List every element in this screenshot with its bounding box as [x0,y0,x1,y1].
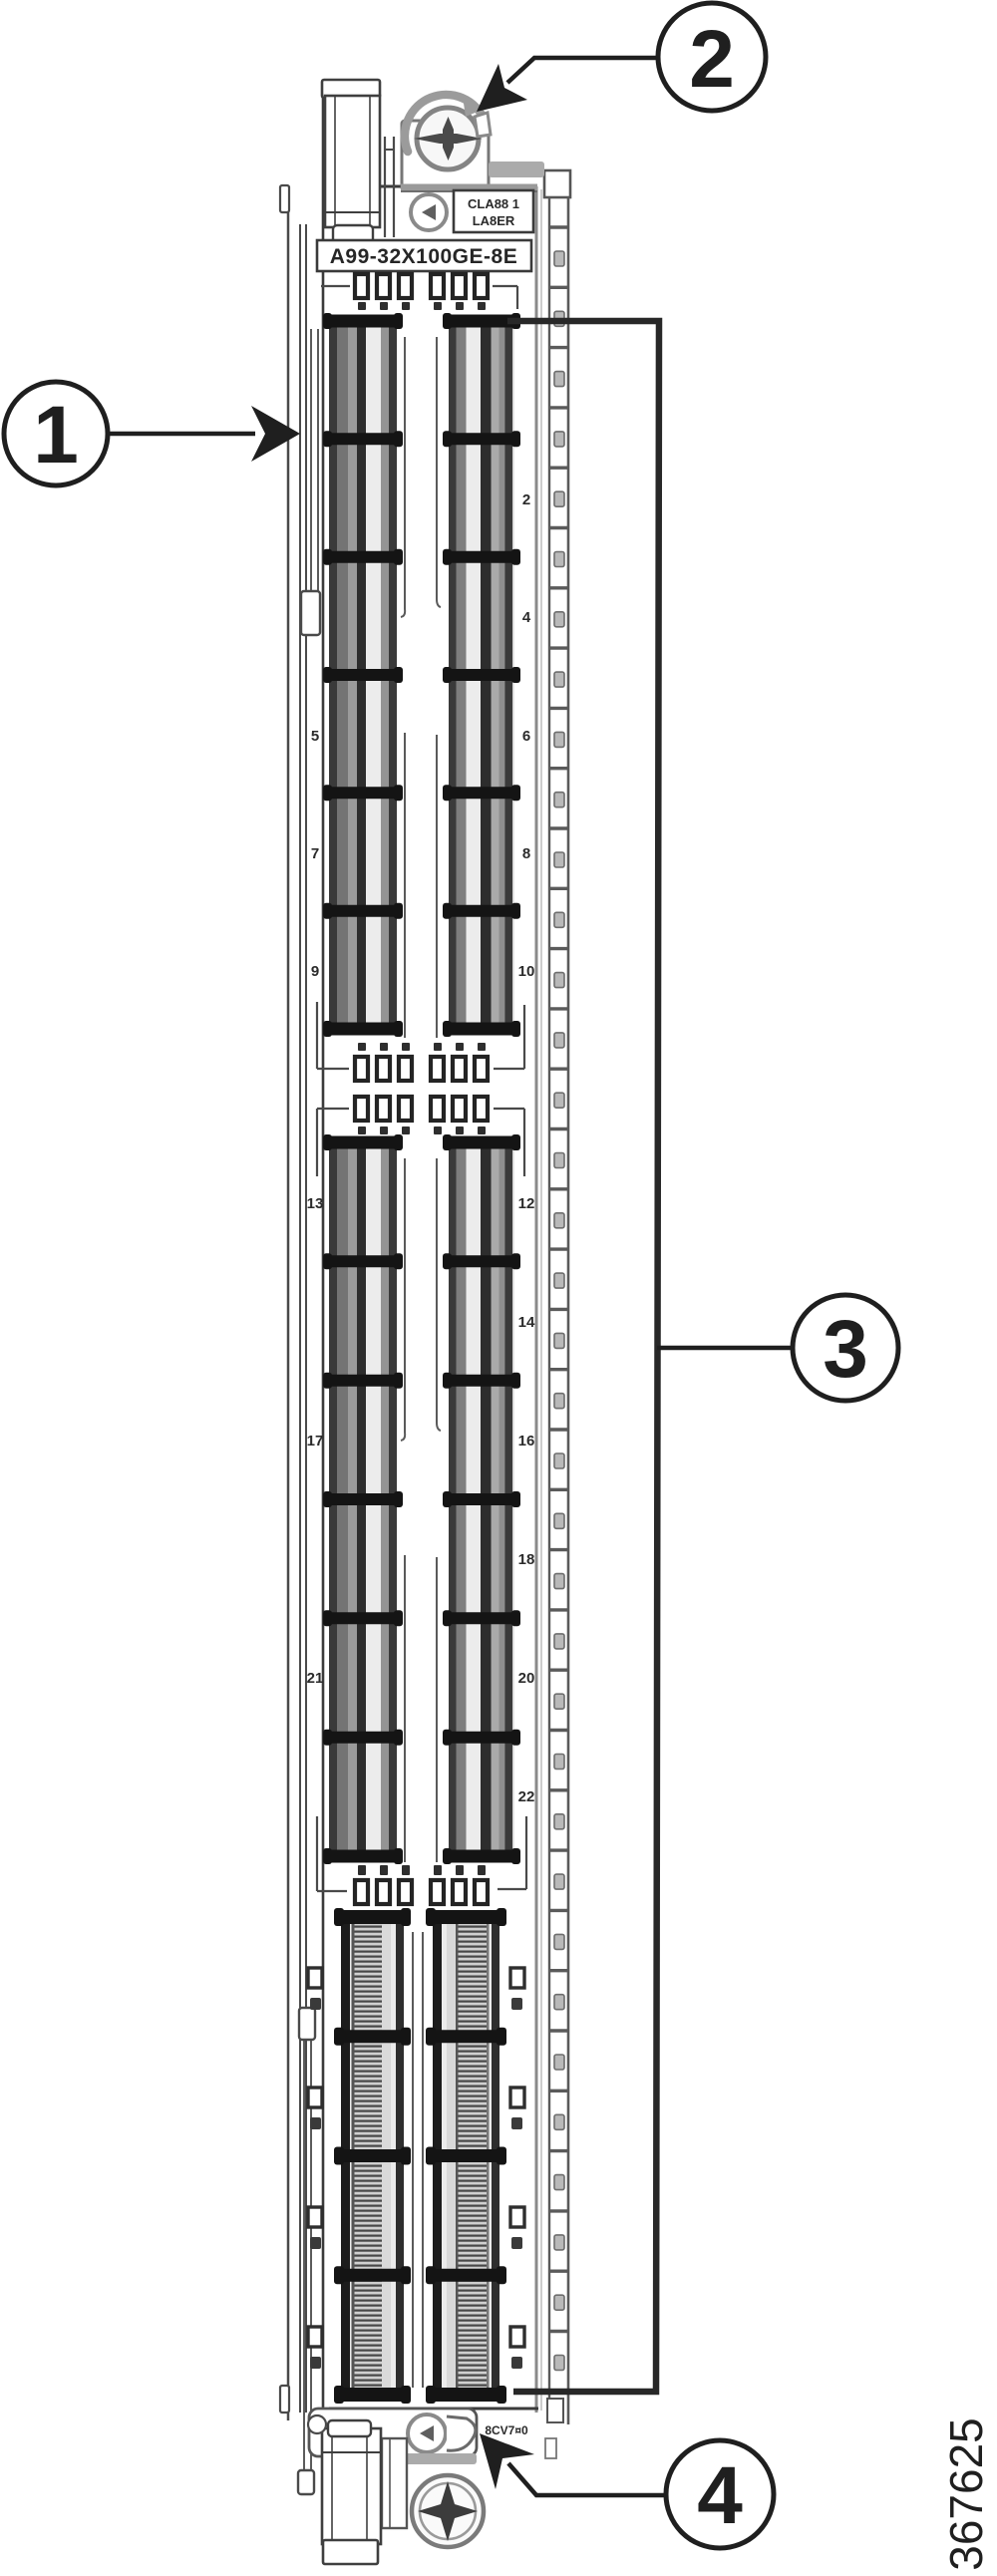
svg-text:4: 4 [697,2450,743,2541]
svg-text:2: 2 [689,14,735,105]
svg-text:21: 21 [307,1670,324,1687]
svg-text:2: 2 [522,491,530,508]
svg-text:18: 18 [518,1551,535,1568]
svg-text:22: 22 [518,1788,535,1805]
svg-text:10: 10 [518,963,535,980]
svg-text:5: 5 [311,728,319,745]
svg-text:7: 7 [311,845,319,862]
svg-text:8: 8 [522,845,530,862]
svg-text:17: 17 [307,1433,324,1449]
svg-text:4: 4 [522,609,531,626]
svg-text:1: 1 [33,390,79,481]
svg-text:14: 14 [518,1314,535,1331]
svg-text:9: 9 [311,963,319,980]
svg-text:16: 16 [518,1433,535,1449]
svg-text:367625: 367625 [940,2417,992,2571]
svg-text:13: 13 [307,1195,324,1212]
svg-text:3: 3 [823,1304,868,1395]
svg-text:CLA88 1: CLA88 1 [468,196,519,211]
svg-text:6: 6 [522,728,530,745]
svg-text:8CV7¤0: 8CV7¤0 [485,2423,528,2437]
svg-text:12: 12 [518,1195,535,1212]
svg-text:A99-32X100GE-8E: A99-32X100GE-8E [330,245,517,268]
svg-text:20: 20 [518,1670,535,1687]
svg-text:LA8ER: LA8ER [473,213,515,228]
